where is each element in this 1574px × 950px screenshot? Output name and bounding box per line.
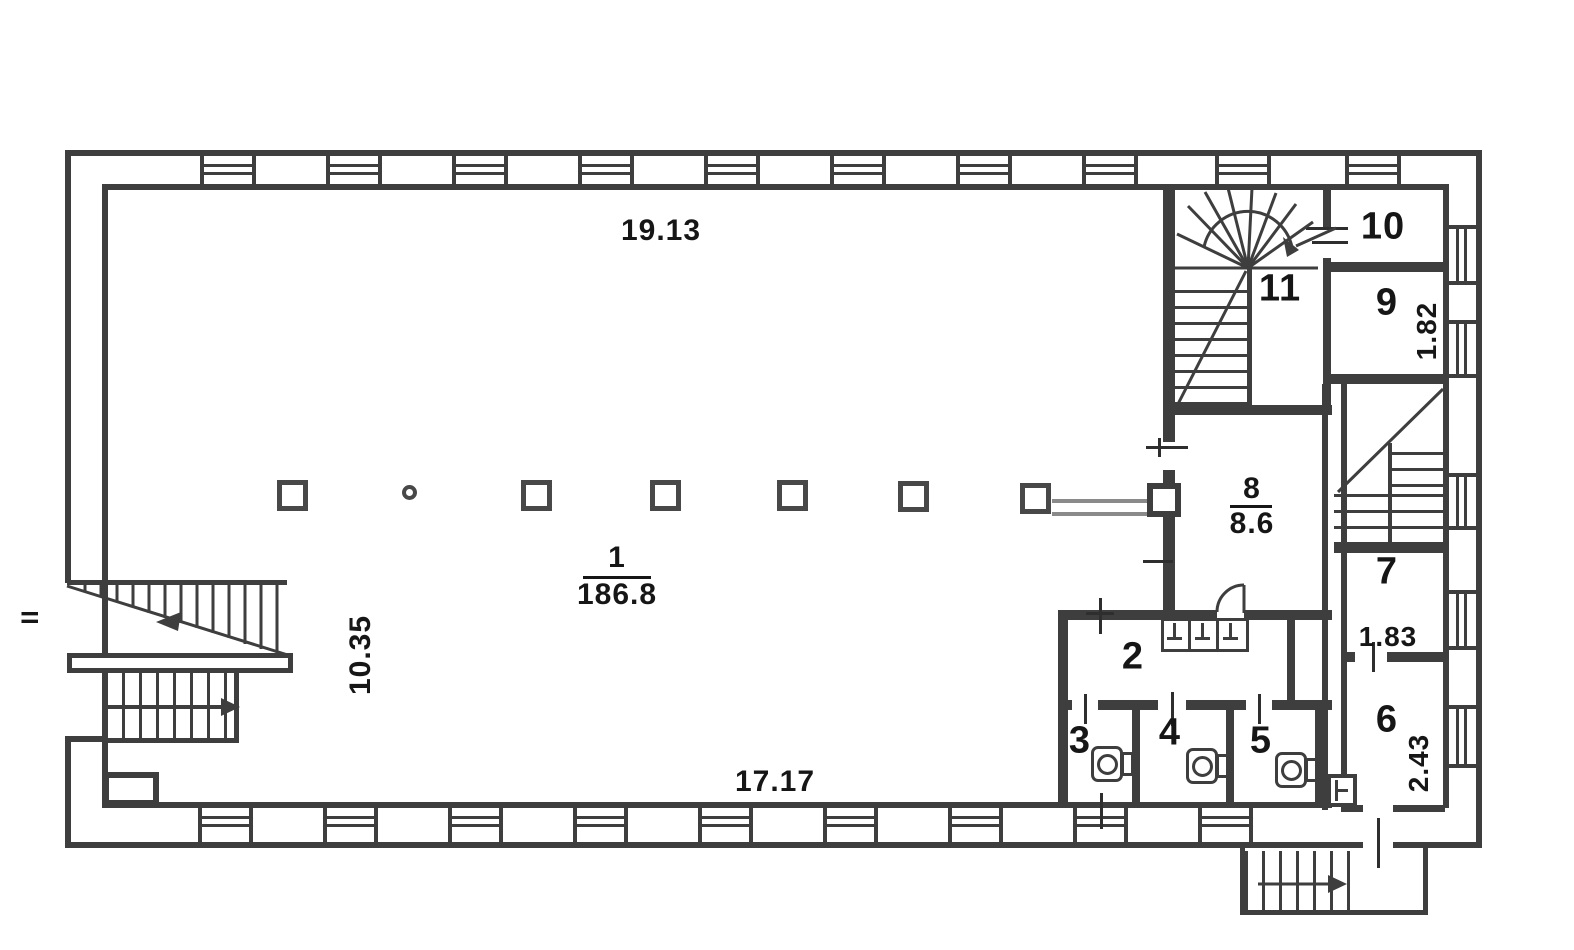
floor-plan: 19.13 10.35 17.17 II 1 186.8 8 8.6 2 3 4…	[0, 0, 1574, 950]
room-8-number: 8	[1243, 472, 1261, 506]
room-1-area: 186.8	[577, 578, 657, 612]
dim-bottom-width: 17.17	[735, 765, 815, 799]
dim-left-height: 10.35	[344, 615, 378, 695]
room-10-number: 10	[1361, 206, 1405, 249]
room-6-dim: 2.43	[1403, 734, 1435, 793]
entrance-label: II	[17, 609, 45, 624]
plan-linework	[0, 0, 1574, 950]
room-11-number: 11	[1259, 268, 1301, 311]
room-9-number: 9	[1376, 282, 1398, 325]
room-1-number: 1	[608, 541, 626, 575]
room-8-area: 8.6	[1230, 507, 1275, 541]
room-7-dim: 1.83	[1359, 621, 1418, 653]
dim-top-width: 19.13	[621, 214, 701, 248]
room-2-number: 2	[1122, 636, 1144, 679]
room-3-number: 3	[1069, 720, 1091, 763]
room-9-dim: 1.82	[1411, 302, 1443, 361]
room-5-number: 5	[1250, 720, 1272, 763]
room-4-number: 4	[1159, 712, 1181, 755]
room-6-number: 6	[1376, 699, 1398, 742]
room-7-number: 7	[1376, 551, 1398, 594]
